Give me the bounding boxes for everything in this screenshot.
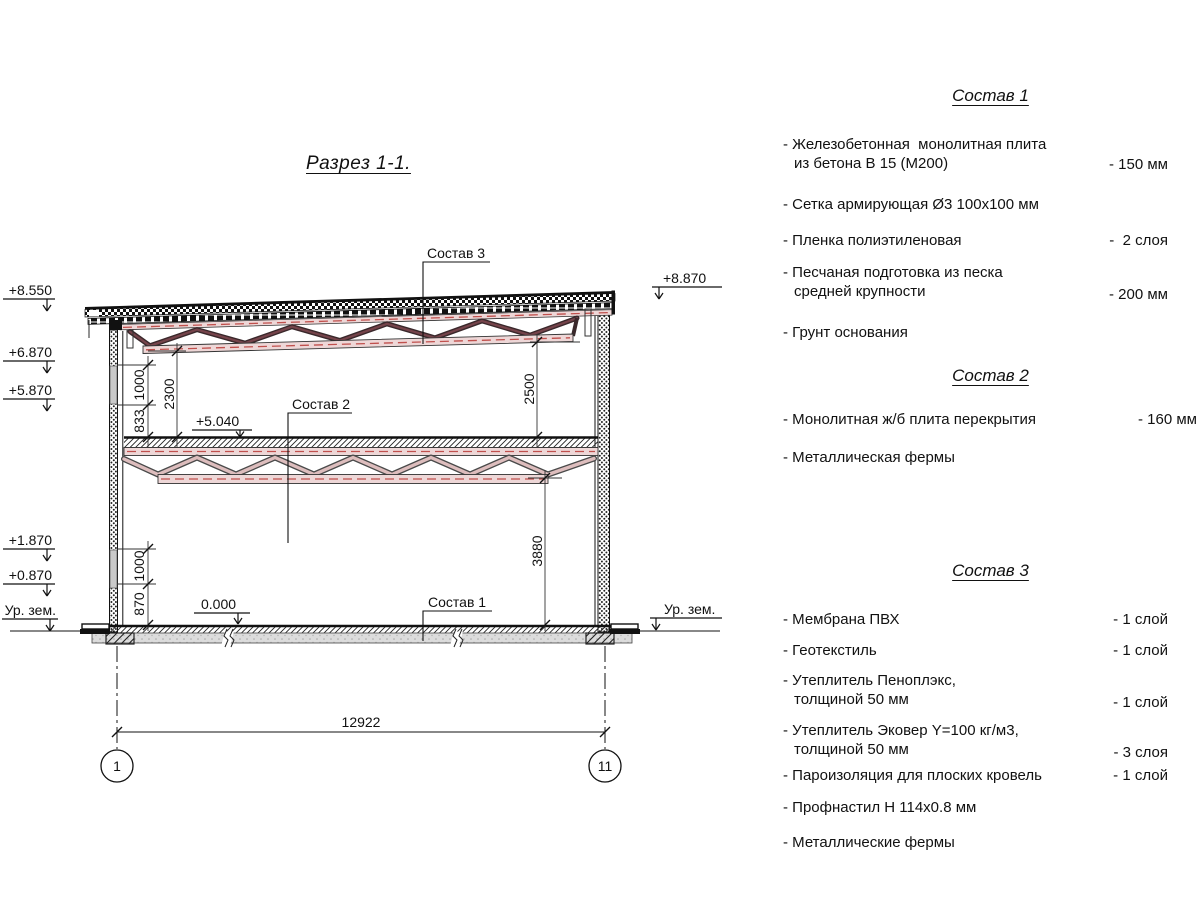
drawing-title: Разрез 1-1.	[306, 153, 411, 175]
level-mark-5040	[192, 430, 252, 437]
axis-1-label: 1	[113, 758, 121, 774]
right-wall	[595, 314, 610, 632]
elevation-6870: +6.870	[9, 344, 52, 360]
level-mark-0000	[194, 613, 250, 624]
dim-2300: 2300	[161, 378, 177, 409]
dim-833: 833	[131, 409, 147, 433]
dim-1000-lower: 1000	[131, 550, 147, 581]
right-apron	[610, 624, 640, 634]
dim-1000-upper: 1000	[131, 369, 147, 400]
dim-total-width: 12922	[342, 714, 381, 730]
legend-item: - Грунт основания	[783, 323, 1198, 342]
legend-item-value: - 1 слой	[1113, 693, 1168, 712]
section-drawing: +8.550 +6.870 +5.870 +1.870 +0.870 Ур. з…	[0, 225, 760, 805]
elevation-8550: +8.550	[9, 282, 52, 298]
legend-item: - Песчаная подготовка из песка средней к…	[783, 263, 1198, 301]
left-wall-opening-upper	[110, 366, 117, 404]
legend-item-value: - 1 слой	[1113, 610, 1168, 629]
elevation-8870: +8.870	[663, 270, 706, 286]
axis-11-label: 11	[598, 758, 613, 774]
left-wall-opening-lower	[110, 550, 117, 588]
left-wall	[110, 330, 123, 632]
legend-heading-sostav3: Состав 3	[783, 561, 1198, 581]
legend-item: - Железобетонная монолитная плита из бет…	[783, 135, 1198, 173]
legend-heading-sostav1: Состав 1	[783, 86, 1198, 106]
elevation-marks-right	[650, 287, 722, 630]
floor-truss	[124, 458, 594, 484]
legend-item: - Геотекстиль - 1 слой	[783, 641, 1198, 660]
legend-item-value: - 160 мм	[1138, 410, 1197, 429]
legend-item: - Профнастил Н 114x0.8 мм	[783, 798, 1198, 817]
middle-floor-slab	[124, 437, 598, 456]
roof-right-edge	[612, 291, 616, 315]
legend-item-value: - 1 слой	[1113, 641, 1168, 660]
legend-heading-sostav2: Состав 2	[783, 366, 1198, 386]
legend-item: - Утеплитель Эковер Y=100 кг/м3, толщино…	[783, 721, 1198, 759]
legend-item: - Металлическая фермы	[783, 448, 1198, 467]
legend-item: - Сетка армирующая Ø3 100x100 мм	[783, 195, 1198, 214]
axis-lines	[112, 646, 610, 749]
roof-left-bearing	[109, 320, 122, 330]
legend-item: - Монолитная ж/б плита перекрытия - 160 …	[783, 410, 1198, 429]
legend-item: - Металлические фермы	[783, 833, 1198, 852]
right-footing	[586, 633, 614, 644]
legend-item: - Пароизоляция для плоских кровель - 1 с…	[783, 766, 1198, 785]
callout-sostav1-label: Состав 1	[428, 594, 486, 610]
legend-item-value: - 200 мм	[1109, 285, 1168, 304]
legend-item-value: - 2 слоя	[1109, 231, 1168, 250]
callout-sostav2-label: Состав 2	[292, 396, 350, 412]
roof-eave-notch	[89, 310, 99, 317]
dim-2500: 2500	[521, 373, 537, 404]
level-5040-label: +5.040	[196, 413, 239, 429]
left-footing	[106, 633, 134, 644]
dim-870: 870	[131, 592, 147, 616]
legend-item: - Пленка полиэтиленовая - 2 слоя	[783, 231, 1198, 250]
legend-item: - Мембрана ПВХ - 1 слой	[783, 610, 1198, 629]
ground-floor-slab	[10, 624, 720, 647]
legend-item: - Утеплитель Пеноплэкс, толщиной 50 мм -…	[783, 671, 1198, 709]
ground-level-label-right: Ур. зем.	[664, 601, 715, 617]
callout-sostav3-label: Состав 3	[427, 245, 485, 261]
ground-level-label-left: Ур. зем.	[5, 602, 56, 618]
legend-item-value: - 1 слой	[1113, 766, 1168, 785]
legend-item-value: - 3 слоя	[1113, 743, 1168, 762]
legend-item-value: - 150 мм	[1109, 155, 1168, 174]
dim-3880: 3880	[529, 535, 545, 566]
drawing-sheet: Разрез 1-1.	[0, 0, 1200, 900]
elevation-0870: +0.870	[9, 567, 52, 583]
elevation-1870: +1.870	[9, 532, 52, 548]
level-0000-label: 0.000	[201, 596, 236, 612]
left-apron	[80, 624, 110, 634]
elevation-5870: +5.870	[9, 382, 52, 398]
